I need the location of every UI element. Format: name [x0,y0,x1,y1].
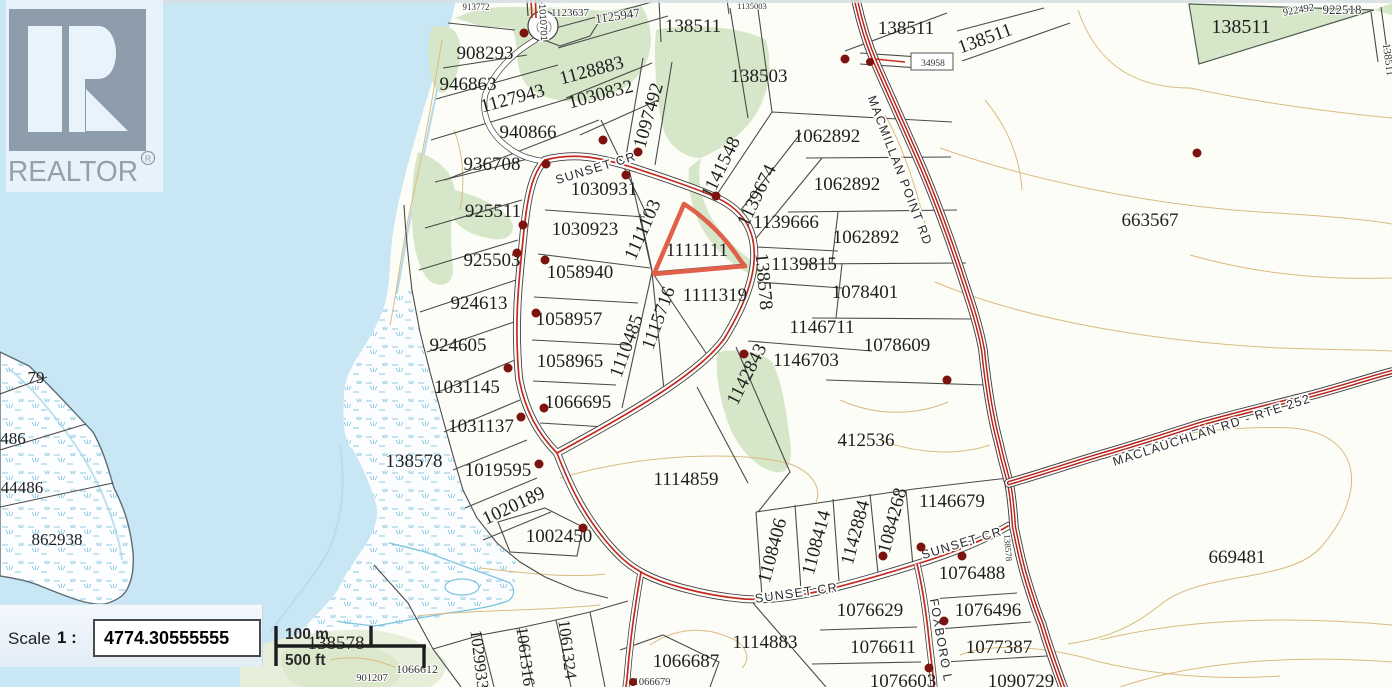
svg-text:922518: 922518 [1323,2,1362,17]
svg-text:1078401: 1078401 [832,282,899,303]
svg-text:924613: 924613 [451,293,508,314]
svg-text:1030931: 1030931 [571,179,638,200]
svg-text:500 ft: 500 ft [285,652,326,669]
svg-text:-1010701: -1010701 [536,1,549,42]
svg-text:1146711: 1146711 [789,317,854,338]
svg-text:1066679: 1066679 [634,677,671,687]
svg-text:44486: 44486 [1,478,44,497]
svg-text:100 m: 100 m [285,626,329,643]
svg-text:1076629: 1076629 [837,600,904,621]
svg-text:1114859: 1114859 [653,469,718,490]
svg-text:1111319: 1111319 [683,285,747,306]
svg-text:REALTOR: REALTOR [8,156,138,188]
svg-text:138511: 138511 [665,16,721,37]
svg-text:1077387: 1077387 [966,637,1033,658]
svg-text:925503: 925503 [464,250,521,271]
svg-text:924605: 924605 [430,335,487,356]
svg-text:138511: 138511 [878,18,934,39]
svg-text:1114883: 1114883 [732,632,797,653]
svg-text:1111111: 1111111 [666,240,728,261]
svg-text:1062892: 1062892 [794,126,861,147]
svg-text:79: 79 [28,368,45,387]
svg-text:1019595: 1019595 [465,460,532,481]
svg-text:1031137: 1031137 [448,416,514,437]
svg-text:1076603: 1076603 [870,671,937,687]
svg-text:925511: 925511 [465,201,521,222]
svg-text:663567: 663567 [1122,210,1179,231]
svg-text:1139666: 1139666 [753,212,819,233]
svg-text:1076488: 1076488 [939,563,1006,584]
svg-text:1062892: 1062892 [814,174,881,195]
svg-text:1066687: 1066687 [653,651,720,672]
svg-text:1076496: 1076496 [955,600,1022,621]
svg-text:R: R [145,154,152,164]
svg-text:412536: 412536 [838,430,895,451]
svg-text:908293: 908293 [457,43,514,64]
svg-text:1139815: 1139815 [771,254,837,275]
svg-text:1058965: 1058965 [537,351,604,372]
svg-text:486: 486 [0,429,26,448]
svg-text:1076611: 1076611 [850,637,916,658]
svg-text:138578: 138578 [386,451,443,472]
svg-text:138503: 138503 [731,66,788,87]
svg-text:138511: 138511 [1211,16,1270,38]
svg-text:862938: 862938 [32,530,83,549]
svg-text:1123637: 1123637 [551,7,590,19]
svg-text:1146703: 1146703 [773,350,839,371]
svg-text:1030923: 1030923 [552,219,619,240]
svg-text:1058940: 1058940 [547,262,614,283]
svg-text:946863: 946863 [440,74,497,95]
svg-text:1058957: 1058957 [536,309,603,330]
svg-text:1062892: 1062892 [833,227,900,248]
svg-text:1031145: 1031145 [434,377,500,398]
svg-text:1146679: 1146679 [919,491,985,512]
svg-text:936708: 936708 [464,154,521,175]
svg-text:1090729: 1090729 [988,671,1055,687]
svg-text:940866: 940866 [500,122,557,143]
svg-text:1066695: 1066695 [545,392,612,413]
svg-text:34958: 34958 [921,59,945,69]
svg-text:913772: 913772 [463,2,490,12]
svg-text:669481: 669481 [1209,547,1266,568]
svg-text:1078609: 1078609 [864,335,931,356]
